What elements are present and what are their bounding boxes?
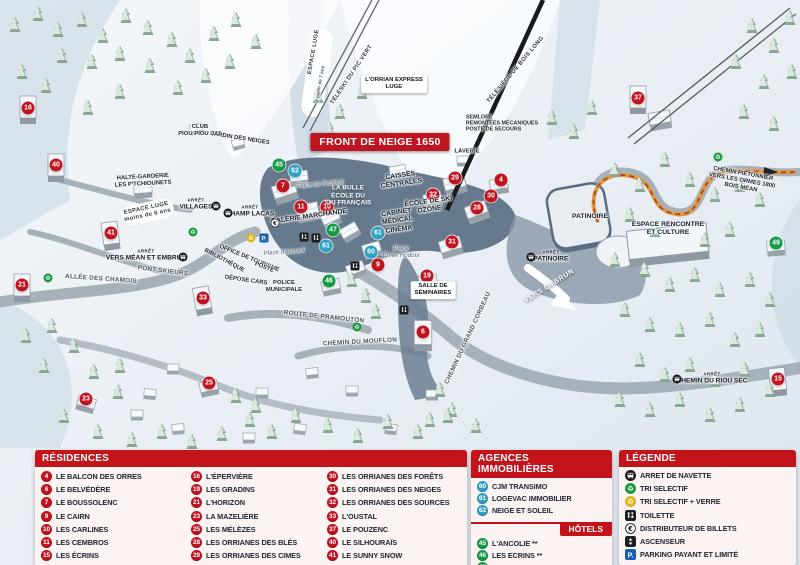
item-label: L'ANCOLIE ** [492,539,538,548]
list-item: 6LE BELVÉDÈRE [35,483,185,496]
item-label: DISTRIBUTEUR DE BILLETS [640,524,737,533]
list-item: ♻TRI SELECTIF [619,482,796,495]
list-item: 16L'ÉPERVIÈRE [185,470,321,483]
item-number-badge: 37 [327,524,338,535]
parking-icon: P. [625,549,636,560]
list-item: 60CJM TRANSIMO [471,480,612,492]
item-number-badge: 45 [477,538,488,549]
item-label: LES CARLINES [56,525,108,534]
list-item: 46LES ECRINS ** [471,549,612,561]
item-label: LES ORRIANES DES BLÉS [206,538,297,547]
resort-map-page: 1640214133232571110929432302831196371545… [0,0,800,565]
item-number-badge: 46 [477,550,488,561]
panel-legende: LÉGENDE ARRET DE NAVETTE♻TRI SELECTIF♻TR… [619,450,796,565]
list-item: 9LE CAIRN [35,510,185,523]
item-label: ARRET DE NAVETTE [640,471,711,480]
item-number-badge: 10 [41,524,52,535]
list-item: 15LES ÉCRINS [35,549,185,562]
item-number-badge: 41 [327,550,338,561]
item-label: LE POUZENC [342,525,388,534]
list-item: 28LES ORRIANES DES BLÉS [185,536,321,549]
list-item: 33L'OUSTAL [321,510,467,523]
list-item: 29LES ORRIANES DES CIMES [185,549,321,562]
list-item: 45L'ANCOLIE ** [471,537,612,549]
item-label: LE BALCON DES ORRES [56,472,142,481]
list-item: 62NEIGE ET SOLEIL [471,504,612,516]
svg-text:♻: ♻ [627,484,634,493]
list-item: 41LE SUNNY SNOW [321,549,467,562]
list-item: 7LE BOUSSOLENC [35,496,185,509]
item-label: LES ÉCRINS [56,551,99,560]
item-label: LE BELVÉDÈRE [56,485,110,494]
legende-list: ARRET DE NAVETTE♻TRI SELECTIF♻TRI SELECT… [619,467,796,565]
item-number-badge: 28 [191,537,202,548]
wc-icon [625,510,636,521]
list-item: ASCENSEUR [619,535,796,548]
bus-icon [625,470,636,481]
item-label: ASCENSEUR [640,537,685,546]
recycle-yellow-icon: ♻ [625,496,636,507]
item-number-badge: 23 [191,511,202,522]
list-item: 23LA MAZELIÈRE [185,510,321,523]
item-label: L'ÉPERVIÈRE [206,472,253,481]
item-number-badge: 62 [477,505,488,516]
panel-residences-header: RÉSIDENCES [35,450,467,467]
item-label: LA MAZELIÈRE [206,512,258,521]
svg-text:P.: P. [628,550,634,559]
residences-column: 16L'ÉPERVIÈRE19LES GRADINS21L'HORIZON23L… [185,470,321,562]
hotels-tab: HÔTELS [560,522,612,536]
item-label: LES CEMBROS [56,538,108,547]
item-number-badge: 21 [191,497,202,508]
list-item: TOILETTE [619,509,796,522]
item-number-badge: 33 [327,511,338,522]
item-number-badge: 16 [191,471,202,482]
list-item: 31LES ORRIANES DES NEIGES [321,483,467,496]
list-item: 25LES MÉLÈZES [185,523,321,536]
list-item: ♻TRI SELECTIF + VERRE [619,495,796,508]
item-label: LE BOUSSOLENC [56,498,118,507]
item-number-badge: 31 [327,484,338,495]
list-item: 11LES CEMBROS [35,536,185,549]
list-item: 47L'ESCALE BLANCHE *** [471,561,612,565]
hotels-divider: HÔTELS [471,522,612,535]
list-item: 61LOGEVAC IMMOBILIER [471,492,612,504]
euro-icon: € [625,523,636,534]
item-label: LES ORRIANES DES CIMES [206,551,301,560]
item-number-badge: 11 [41,537,52,548]
item-number-badge: 6 [41,484,52,495]
item-label: PARKING PAYANT ET LIMITÉ [640,550,738,559]
hotels-list: 45L'ANCOLIE **46LES ECRINS **47L'ESCALE … [471,535,612,565]
list-item: P.PARKING PAYANT ET LIMITÉ [619,548,796,561]
item-number-badge: 25 [191,524,202,535]
panel-agences-hotels: AGENCES IMMOBILIÈRES 60CJM TRANSIMO61LOG… [471,450,612,565]
recycle-icon: ♻ [625,483,636,494]
item-label: LES MÉLÈZES [206,525,256,534]
list-item: 37LE POUZENC [321,523,467,536]
list-item: 21L'HORIZON [185,496,321,509]
residences-column: 4LE BALCON DES ORRES6LE BELVÉDÈRE7LE BOU… [35,470,185,562]
list-item: 30LES ORRIANES DES FORÊTS [321,470,467,483]
item-label: TRI SELECTIF + VERRE [640,497,721,506]
panel-agences-header: AGENCES IMMOBILIÈRES [471,450,612,478]
item-label: LE SILHOURAÏS [342,538,397,547]
item-label: LE CAIRN [56,512,90,521]
list-item: 32LES ORRIANES DES SOURCES [321,496,467,509]
item-label: LES GRADINS [206,485,255,494]
panel-residences: RÉSIDENCES 4LE BALCON DES ORRES6LE BELVÉ… [35,450,467,565]
list-item: 19LES GRADINS [185,483,321,496]
item-label: LES ECRINS ** [492,551,542,560]
item-label: CJM TRANSIMO [492,482,547,491]
item-label: L'OUSTAL [342,512,377,521]
list-item: €DISTRIBUTEUR DE BILLETS [619,522,796,535]
svg-text:♻: ♻ [627,498,634,507]
item-number-badge: 15 [41,550,52,561]
item-number-badge: 61 [477,493,488,504]
residences-column: 30LES ORRIANES DES FORÊTS31LES ORRIANES … [321,470,467,562]
item-number-badge: 9 [41,511,52,522]
item-number-badge: 40 [327,537,338,548]
item-label: TOILETTE [640,511,674,520]
agences-list: 60CJM TRANSIMO61LOGEVAC IMMOBILIER62NEIG… [471,478,612,520]
item-number-badge: 4 [41,471,52,482]
item-label: LES ORRIANES DES NEIGES [342,485,441,494]
list-item: 40LE SILHOURAÏS [321,536,467,549]
panel-legende-header: LÉGENDE [619,450,796,467]
item-number-badge: 60 [477,481,488,492]
item-number-badge: 32 [327,497,338,508]
list-item: 4LE BALCON DES ORRES [35,470,185,483]
list-item: ARRET DE NAVETTE [619,469,796,482]
item-number-badge: 30 [327,471,338,482]
item-number-badge: 29 [191,550,202,561]
svg-text:€: € [627,525,633,533]
item-label: NEIGE ET SOLEIL [492,506,553,515]
item-label: L'HORIZON [206,498,245,507]
elevator-icon [625,536,636,547]
item-label: LOGEVAC IMMOBILIER [492,494,572,503]
item-label: LE SUNNY SNOW [342,551,402,560]
item-number-badge: 19 [191,484,202,495]
item-label: LES ORRIANES DES SOURCES [342,498,449,507]
list-item: 10LES CARLINES [35,523,185,536]
item-label: LES ORRIANES DES FORÊTS [342,472,443,481]
item-label: TRI SELECTIF [640,484,688,493]
residences-columns: 4LE BALCON DES ORRES6LE BELVÉDÈRE7LE BOU… [35,467,467,565]
item-number-badge: 47 [477,562,488,565]
item-number-badge: 7 [41,497,52,508]
